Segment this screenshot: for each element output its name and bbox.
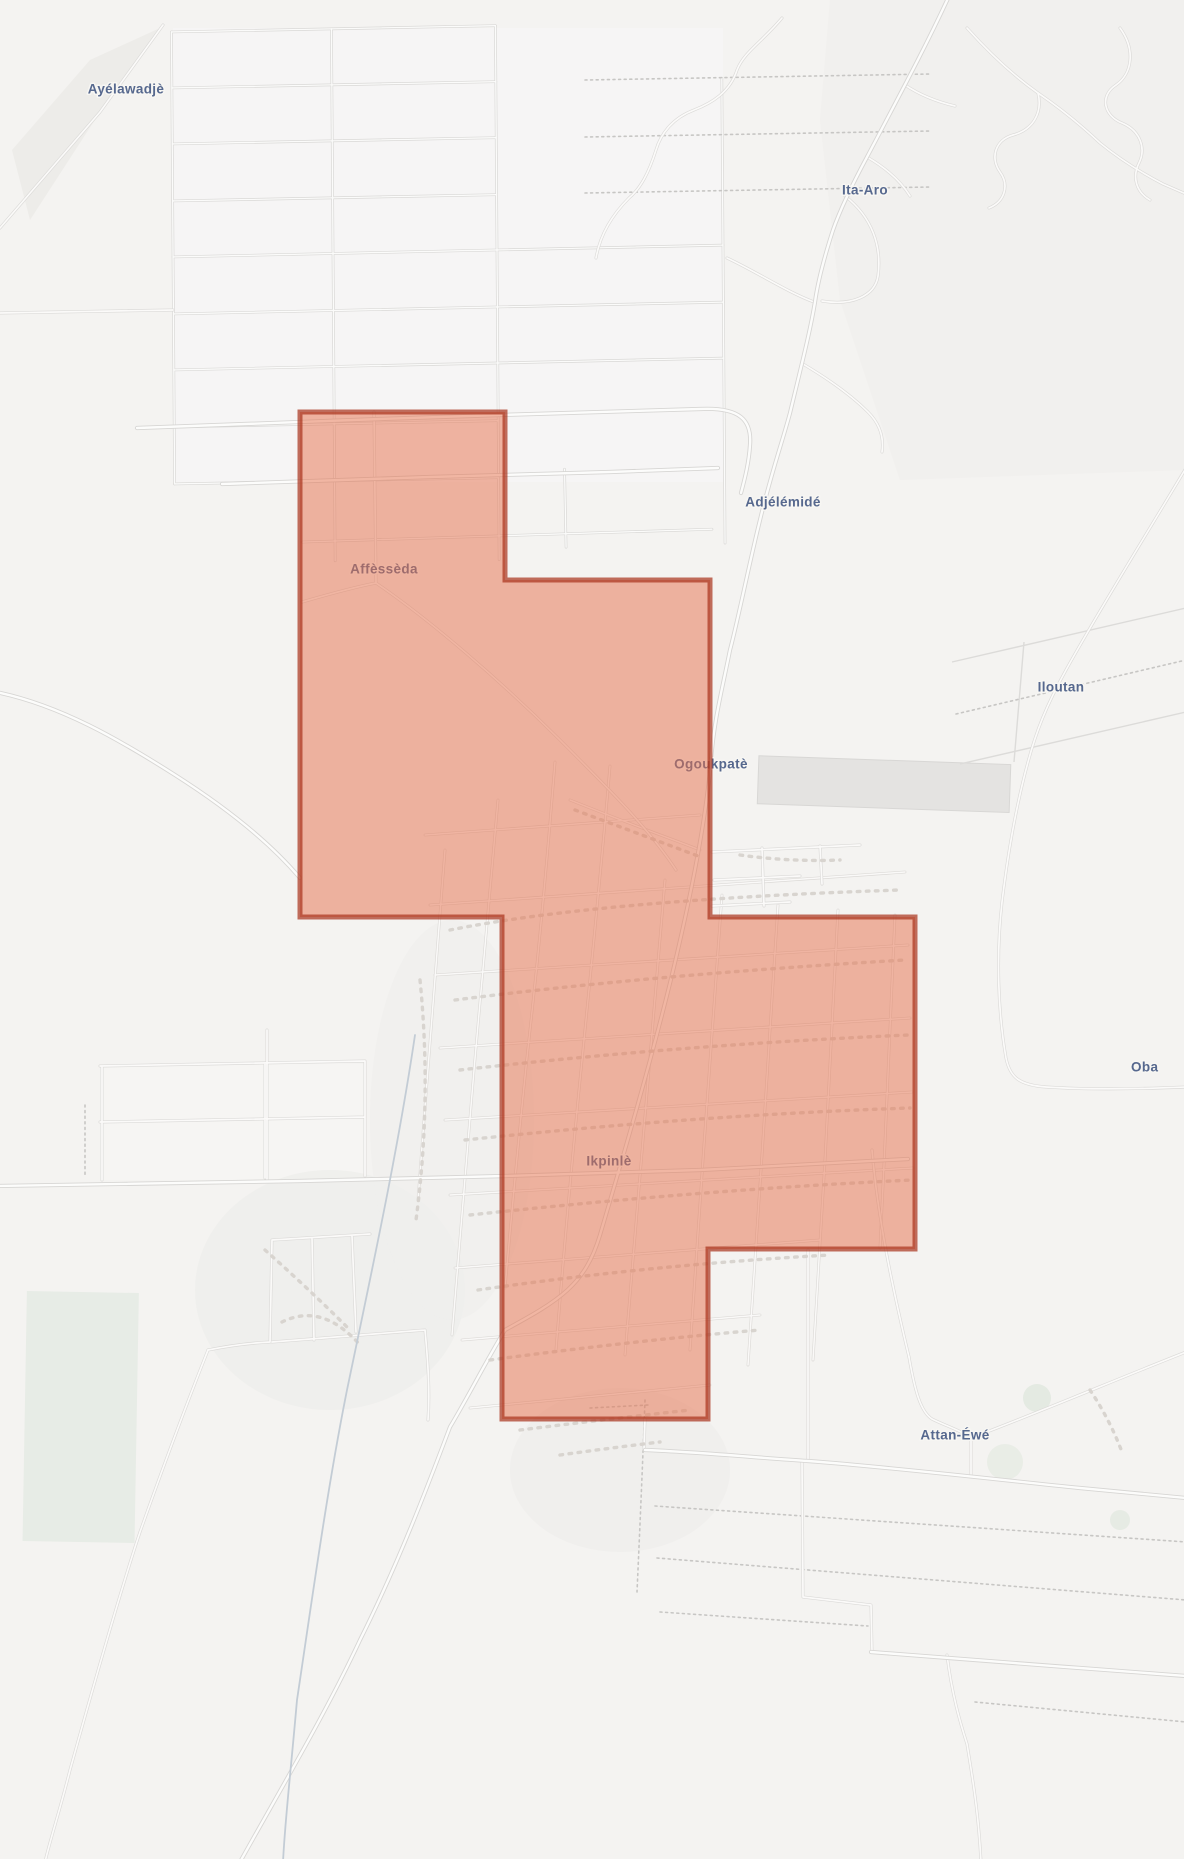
place-label: Ita-Aro: [842, 183, 888, 198]
place-label: Iloutan: [1038, 680, 1085, 695]
place-label: Ayélawadjè: [88, 82, 165, 97]
industrial-area: [757, 756, 1011, 813]
map-viewport[interactable]: AyélawadjèIta-AroAdjélémidéAffèssèdaIlou…: [0, 0, 1184, 1859]
map-canvas[interactable]: AyélawadjèIta-AroAdjélémidéAffèssèdaIlou…: [0, 0, 1184, 1859]
vegetation-field: [23, 1291, 139, 1543]
place-label: Attan-Éwé: [920, 1428, 989, 1443]
place-label: Oba: [1131, 1060, 1158, 1075]
place-label: Adjélémidé: [745, 495, 821, 510]
